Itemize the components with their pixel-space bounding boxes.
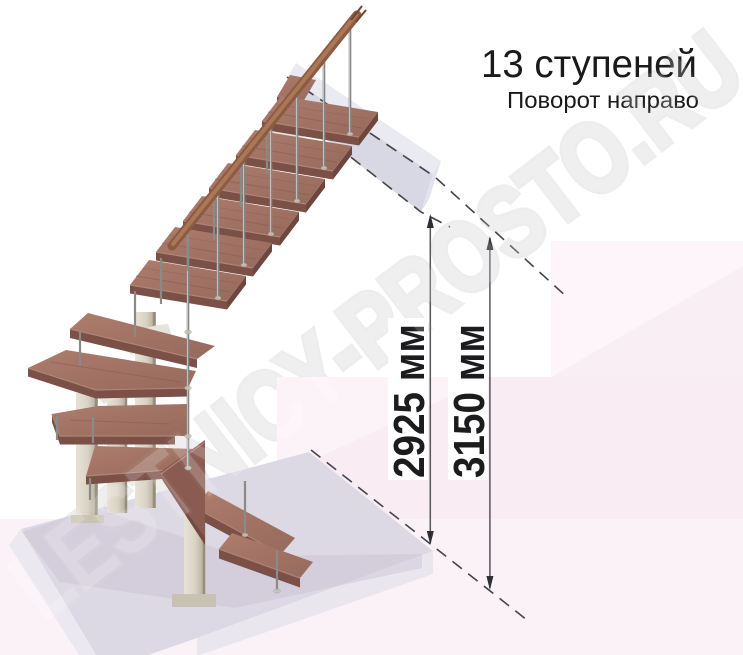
svg-text:3150 мм: 3150 мм (445, 324, 494, 478)
